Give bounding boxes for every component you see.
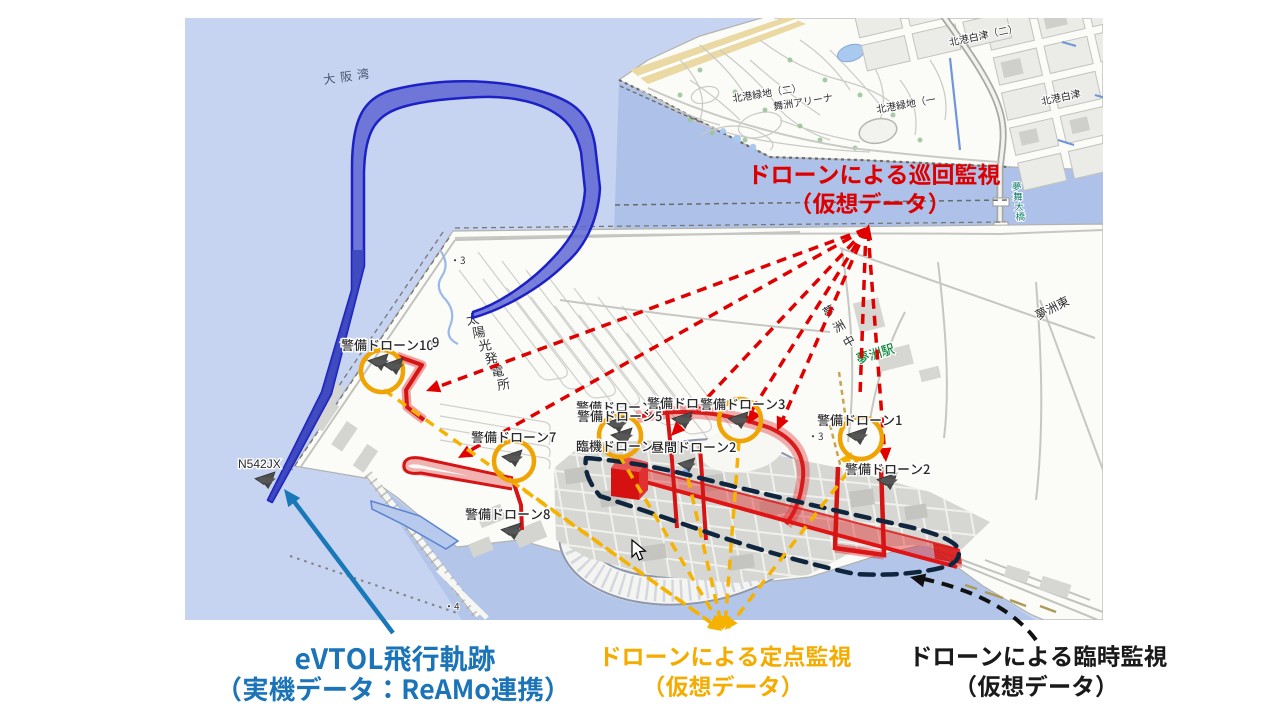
svg-text:N542JX: N542JX bbox=[238, 457, 281, 471]
